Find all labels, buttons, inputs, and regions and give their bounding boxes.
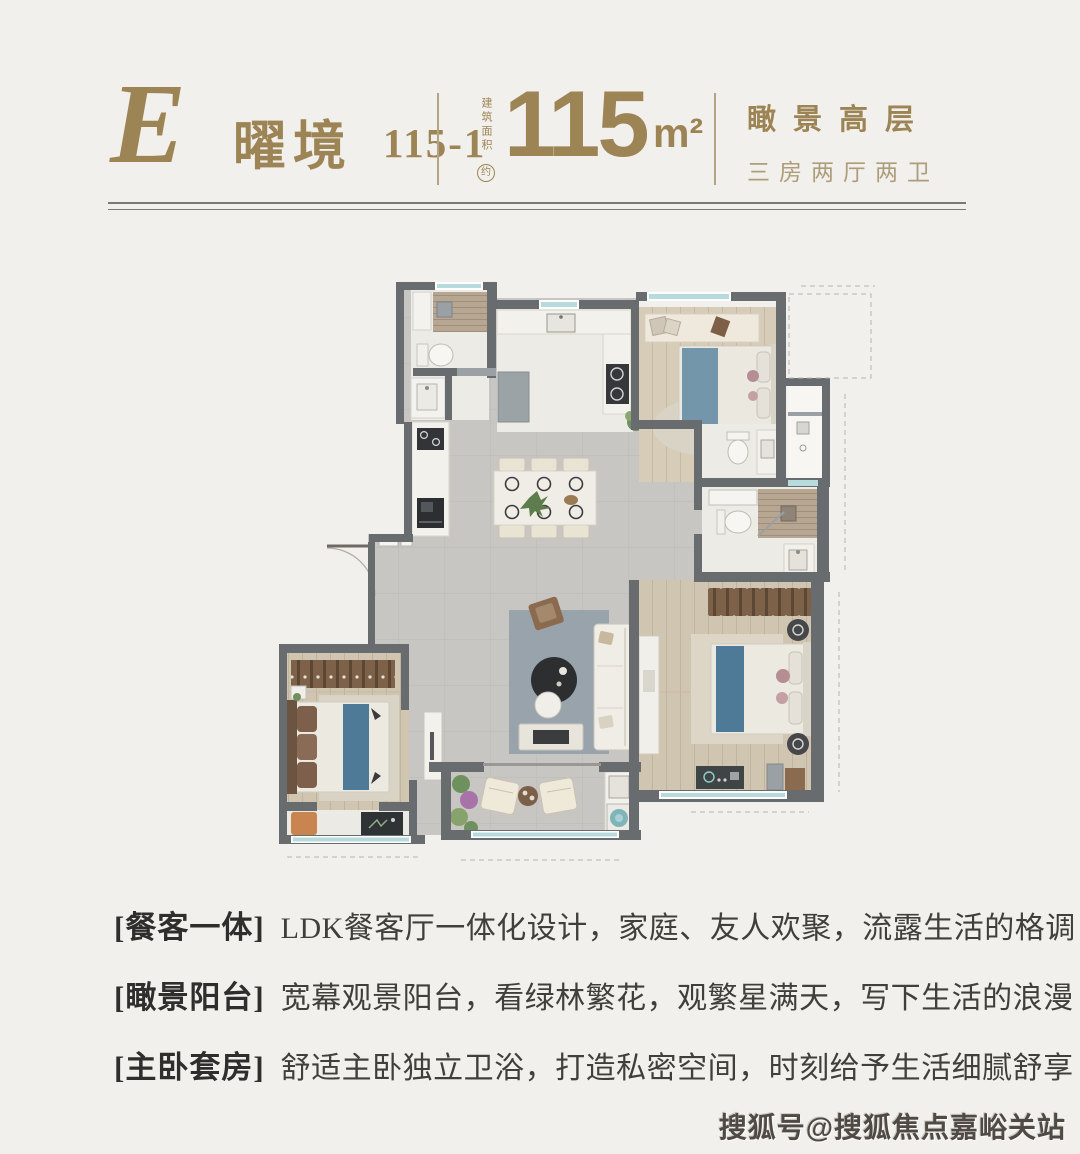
plan-code: 115-1 bbox=[383, 119, 486, 167]
rule-line-top bbox=[108, 202, 966, 204]
header-divider-1 bbox=[437, 93, 439, 185]
area-approx-badge: 约 bbox=[477, 164, 495, 182]
balcony-bedroom-3 bbox=[287, 810, 409, 837]
kitchen bbox=[497, 307, 633, 432]
feature-tag: [瞰景阳台] bbox=[114, 980, 265, 1015]
plan-letter: E bbox=[110, 64, 186, 184]
watermark: 搜狐号@搜狐焦点嘉峪关站 bbox=[719, 1106, 1066, 1146]
ensuite-bathroom bbox=[702, 424, 778, 479]
area-unit: m² bbox=[653, 110, 703, 157]
floor-plan bbox=[261, 272, 879, 874]
double-rule bbox=[108, 202, 966, 215]
feature-row-master: [主卧套房]舒适主卧独立卫浴，打造私密空间，时刻给予生活细腻舒享 bbox=[114, 1042, 1074, 1087]
equipment-platform bbox=[788, 386, 822, 480]
bathroom-2 bbox=[702, 487, 817, 577]
plan-name: 曜境 bbox=[233, 104, 353, 180]
floor-plan-svg bbox=[261, 272, 879, 874]
area-label: 建筑面积 bbox=[477, 97, 495, 153]
feature-subtitle: 三房两厅两卫 bbox=[747, 153, 965, 187]
feature-row-dining: [餐客一体]LDK餐客厅一体化设计，家庭、友人欢聚，流露生活的格调 bbox=[114, 902, 1076, 947]
kitchen-counter-strip bbox=[412, 422, 449, 536]
feature-tag: [主卧套房] bbox=[114, 1050, 265, 1085]
rule-line-bottom bbox=[108, 209, 966, 211]
header-divider-2 bbox=[714, 93, 716, 185]
page: E 曜境 115-1 建筑面积 约 115 m² 瞰景高层 三房两厅两卫 bbox=[0, 0, 1080, 1154]
area-value: 115 bbox=[504, 70, 647, 178]
feature-row-balcony: [瞰景阳台]宽幕观景阳台，看绿林繁花，观繁星满天，写下生活的浪漫 bbox=[114, 972, 1074, 1017]
feature-text: LDK餐客厅一体化设计，家庭、友人欢聚，流露生活的格调 bbox=[281, 912, 1076, 945]
feature-title: 瞰景高层 bbox=[747, 96, 965, 138]
master-bedroom bbox=[636, 580, 816, 792]
header-feature-block: 瞰景高层 三房两厅两卫 bbox=[747, 96, 965, 187]
area-label-column: 建筑面积 约 bbox=[477, 97, 495, 182]
feature-tag: [餐客一体] bbox=[114, 910, 265, 945]
feature-text: 舒适主卧独立卫浴，打造私密空间，时刻给予生活细腻舒享 bbox=[281, 1052, 1074, 1085]
feature-text: 宽幕观景阳台，看绿林繁花，观繁星满天，写下生活的浪漫 bbox=[281, 982, 1074, 1015]
